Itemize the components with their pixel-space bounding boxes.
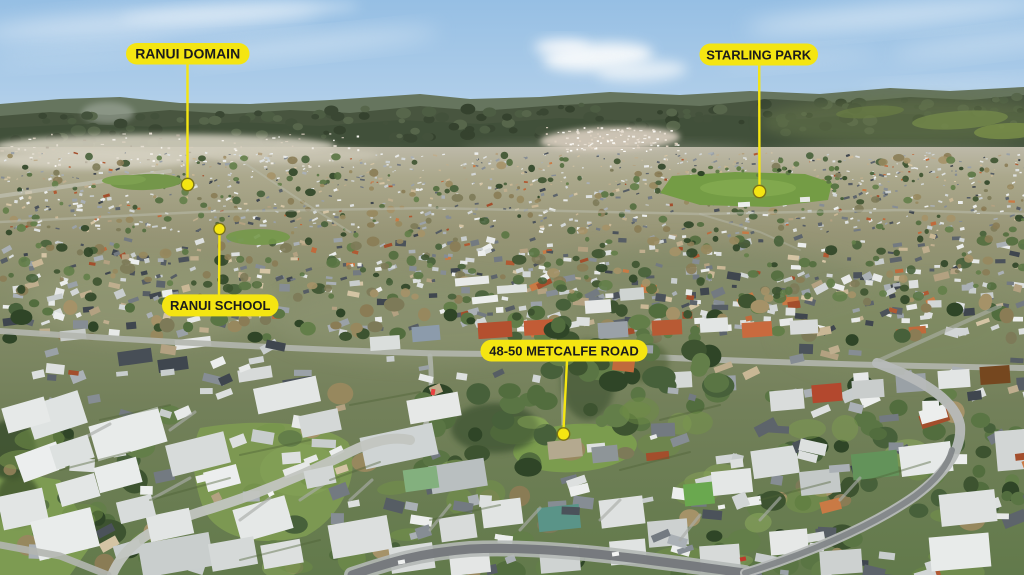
svg-text:STARLING PARK: STARLING PARK: [706, 47, 812, 62]
svg-text:48-50 METCALFE ROAD: 48-50 METCALFE ROAD: [489, 343, 639, 358]
svg-text:RANUI SCHOOL: RANUI SCHOOL: [170, 298, 270, 313]
svg-text:RANUI DOMAIN: RANUI DOMAIN: [135, 46, 240, 62]
